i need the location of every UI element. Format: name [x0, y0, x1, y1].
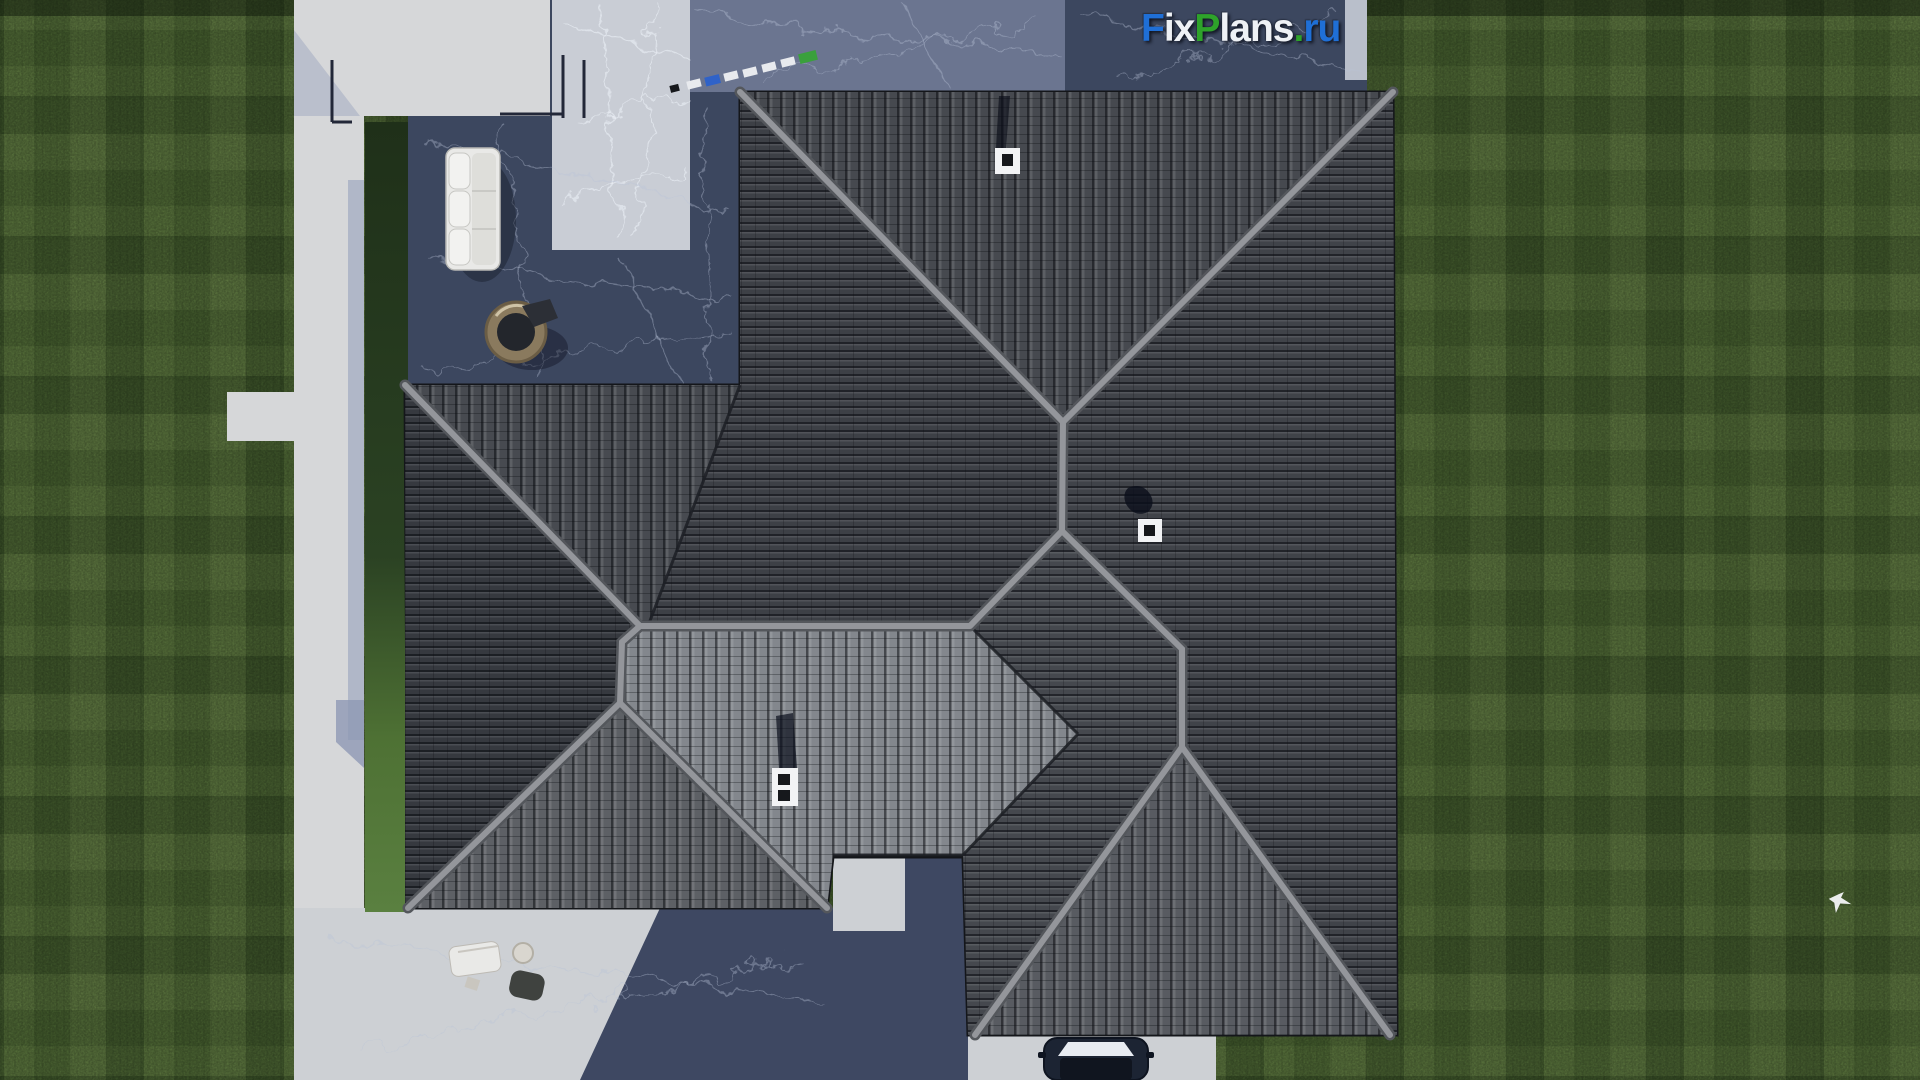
logo-letter: l: [1219, 8, 1229, 51]
chimney-flue: [1002, 154, 1013, 166]
side-table: [513, 943, 533, 963]
logo-letter: P: [1194, 8, 1219, 51]
chimney-flue: [778, 790, 790, 801]
car: [1038, 1038, 1154, 1080]
logo-letter: u: [1318, 8, 1341, 51]
logo-letter: s: [1273, 8, 1294, 51]
patio-sunlit-zone: [552, 0, 690, 250]
patio-midtone-zone: [690, 0, 1065, 92]
logo-letter: a: [1229, 8, 1250, 51]
notch-ground-shadow: [905, 857, 965, 931]
notch-ground-light: [833, 857, 909, 931]
chimney-flue: [1144, 525, 1155, 536]
logo-letter: r: [1303, 8, 1317, 51]
logo-letter: x: [1174, 8, 1195, 51]
logo-letter: F: [1141, 8, 1164, 51]
logo-letter: n: [1250, 8, 1273, 51]
aerial-house-render: { "watermark": { "full_text": "FixPlans.…: [0, 0, 1920, 1080]
chimney-flue: [778, 774, 790, 785]
side-mirror: [1038, 1052, 1046, 1058]
grass-strip: [365, 122, 408, 912]
car-roof: [1060, 1058, 1132, 1080]
fixplans-watermark[interactable]: FixPlans.ru: [1141, 8, 1371, 51]
side-mirror: [1146, 1052, 1154, 1058]
logo-letter: i: [1164, 8, 1174, 51]
scene-canvas: [0, 0, 1920, 1080]
path-shadow-strip: [348, 180, 364, 740]
logo-letter: .: [1293, 8, 1303, 51]
windshield: [1058, 1042, 1134, 1056]
concrete-path-jog: [227, 392, 294, 441]
